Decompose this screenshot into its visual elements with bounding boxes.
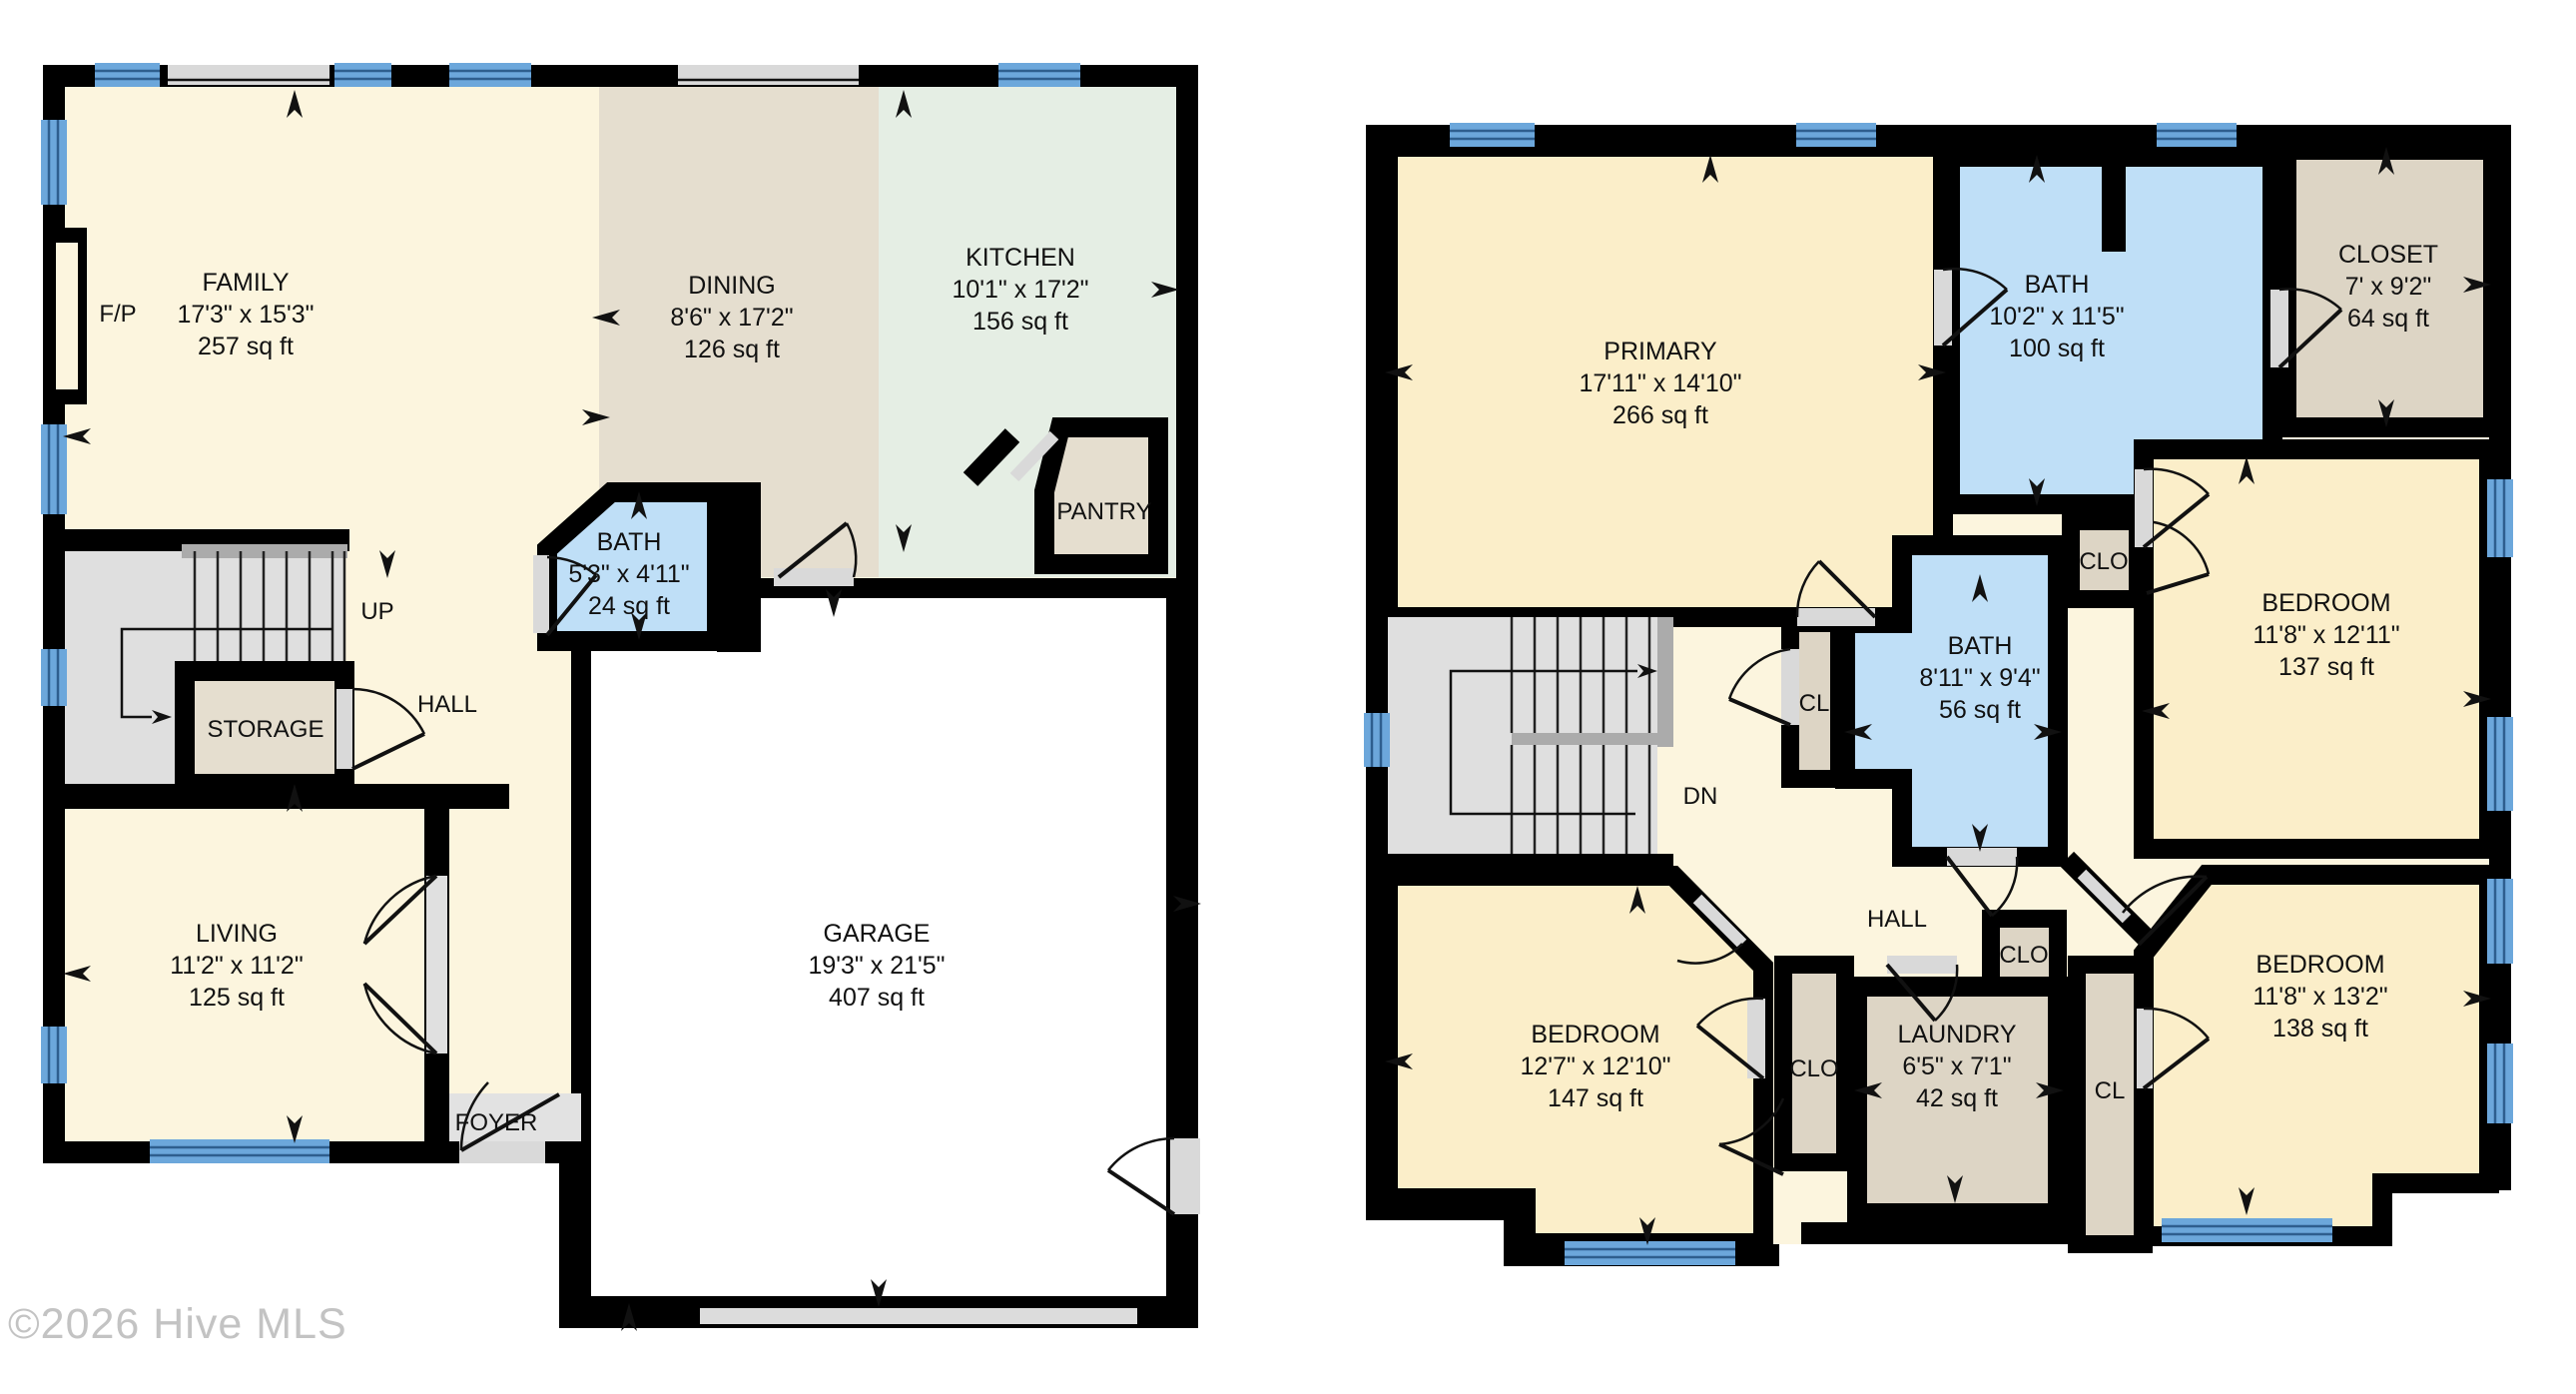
bedroom3-label-area: 138 sq ft: [2272, 1015, 2368, 1043]
closet-label-area: 64 sq ft: [2347, 305, 2429, 333]
closet-label-name: CLOSET: [2338, 241, 2438, 269]
kitchen-label-name: KITCHEN: [966, 244, 1075, 272]
storage-door: [336, 689, 352, 769]
laundry-label-area: 42 sq ft: [1916, 1084, 1998, 1112]
garage-label-area: 407 sq ft: [829, 984, 925, 1012]
bath2-label-dims: 8'11" x 9'4": [1919, 664, 2040, 692]
bedroom2-label-dims: 12'7" x 12'10": [1520, 1052, 1670, 1080]
mls-watermark: ©2026 Hive MLS: [8, 1300, 347, 1349]
pantry-label: PANTRY: [1056, 498, 1151, 525]
primary-label-area: 266 sq ft: [1612, 401, 1708, 429]
dining-room-label-name: DINING: [688, 272, 776, 300]
hall2-label: HALL: [1867, 906, 1927, 933]
living-room-label-area: 125 sq ft: [189, 984, 285, 1012]
closet-label-dims: 7' x 9'2": [2345, 273, 2432, 301]
hall-living-wall: [43, 784, 509, 809]
dining-room-label-dims: 8'6" x 17'2": [670, 304, 793, 332]
primary-bath-wall-stub: [2102, 147, 2126, 252]
stairs2-cap-mid: [1512, 733, 1673, 745]
fireplace-label: F/P: [99, 301, 136, 328]
first-floor-plan: FAMILY 17'3" x 15'3" 257 sq ft DINING 8'…: [41, 63, 1201, 1331]
bedroom3-label-name: BEDROOM: [2255, 951, 2384, 979]
bath-side-wall: [717, 482, 761, 652]
window-living-bottom: [150, 1139, 329, 1163]
bedroom3-label-dims: 11'8" x 13'2": [2253, 983, 2387, 1011]
storage-label: STORAGE: [208, 716, 324, 743]
bath-door: [533, 555, 549, 633]
bedroom1-label-dims: 11'8" x 12'11": [2253, 621, 2399, 649]
clo-laundry-label: CLO: [1999, 942, 2048, 969]
garage-label-dims: 19'3" x 21'5": [808, 952, 945, 980]
dining-room-label-area: 126 sq ft: [684, 336, 780, 363]
bedroom1-label-area: 137 sq ft: [2278, 653, 2374, 681]
bedroom3-area: [2144, 875, 2489, 1236]
second-floor-plan: PRIMARY 17'11" x 14'10" 266 sq ft BATH 1…: [1364, 123, 2513, 1266]
garage-side-door: [1170, 1138, 1200, 1214]
bath2-label-area: 56 sq ft: [1939, 696, 2021, 724]
fireplace-inner: [56, 243, 78, 389]
living-french-door: [426, 876, 447, 1053]
bath2-label-name: BATH: [1948, 632, 2013, 660]
bedroom2-label-area: 147 sq ft: [1548, 1084, 1643, 1112]
garage-label-name: GARAGE: [824, 920, 931, 948]
bath1-label-name: BATH: [2025, 271, 2090, 299]
bath-label-name: BATH: [597, 528, 662, 556]
floorplan-page: FAMILY 17'3" x 15'3" 257 sq ft DINING 8'…: [0, 0, 2576, 1394]
primary-label-dims: 17'11" x 14'10": [1579, 369, 1741, 397]
laundry-label-name: LAUNDRY: [1897, 1021, 2016, 1048]
bath-label-area: 24 sq ft: [588, 592, 670, 620]
bath1-label-dims: 10'2" x 11'5": [1989, 303, 2124, 331]
kitchen-label-area: 156 sq ft: [972, 308, 1068, 336]
pantry-area: [1044, 427, 1158, 564]
family-room-label-name: FAMILY: [202, 269, 289, 297]
clo-bath-label: CLO: [2079, 548, 2128, 575]
bath-label-dims: 5'3" x 4'11": [568, 560, 689, 588]
cl-laundry-area: [2077, 965, 2144, 1244]
stairs-dn-label: DN: [1683, 783, 1718, 810]
bedroom2-label-name: BEDROOM: [1531, 1021, 1659, 1048]
bath1-label-area: 100 sq ft: [2009, 335, 2105, 362]
cl-hall-label: CL: [1799, 690, 1830, 717]
garage-door: [699, 1307, 1138, 1325]
laundry-label-dims: 6'5" x 7'1": [1902, 1052, 2011, 1080]
hall-label: HALL: [417, 691, 477, 718]
foyer-label: FOYER: [455, 1109, 538, 1136]
clo-bedroom2-label: CLO: [1789, 1055, 1838, 1082]
floorplan-drawing: FAMILY 17'3" x 15'3" 257 sq ft DINING 8'…: [0, 0, 2576, 1394]
primary-label-name: PRIMARY: [1604, 338, 1717, 365]
cl-laundry-label: CL: [2095, 1077, 2126, 1104]
stairs-up-label: UP: [360, 598, 393, 625]
family-room-label-dims: 17'3" x 15'3": [177, 301, 314, 329]
living-room-label-dims: 11'2" x 11'2": [170, 952, 303, 980]
bedroom1-label-name: BEDROOM: [2261, 589, 2390, 617]
stairs2-cap-right: [1657, 617, 1673, 747]
kitchen-label-dims: 10'1" x 17'2": [952, 276, 1088, 304]
living-room-label-name: LIVING: [196, 920, 278, 948]
family-room-label-area: 257 sq ft: [198, 333, 294, 360]
bedroom1-area: [2144, 449, 2489, 849]
